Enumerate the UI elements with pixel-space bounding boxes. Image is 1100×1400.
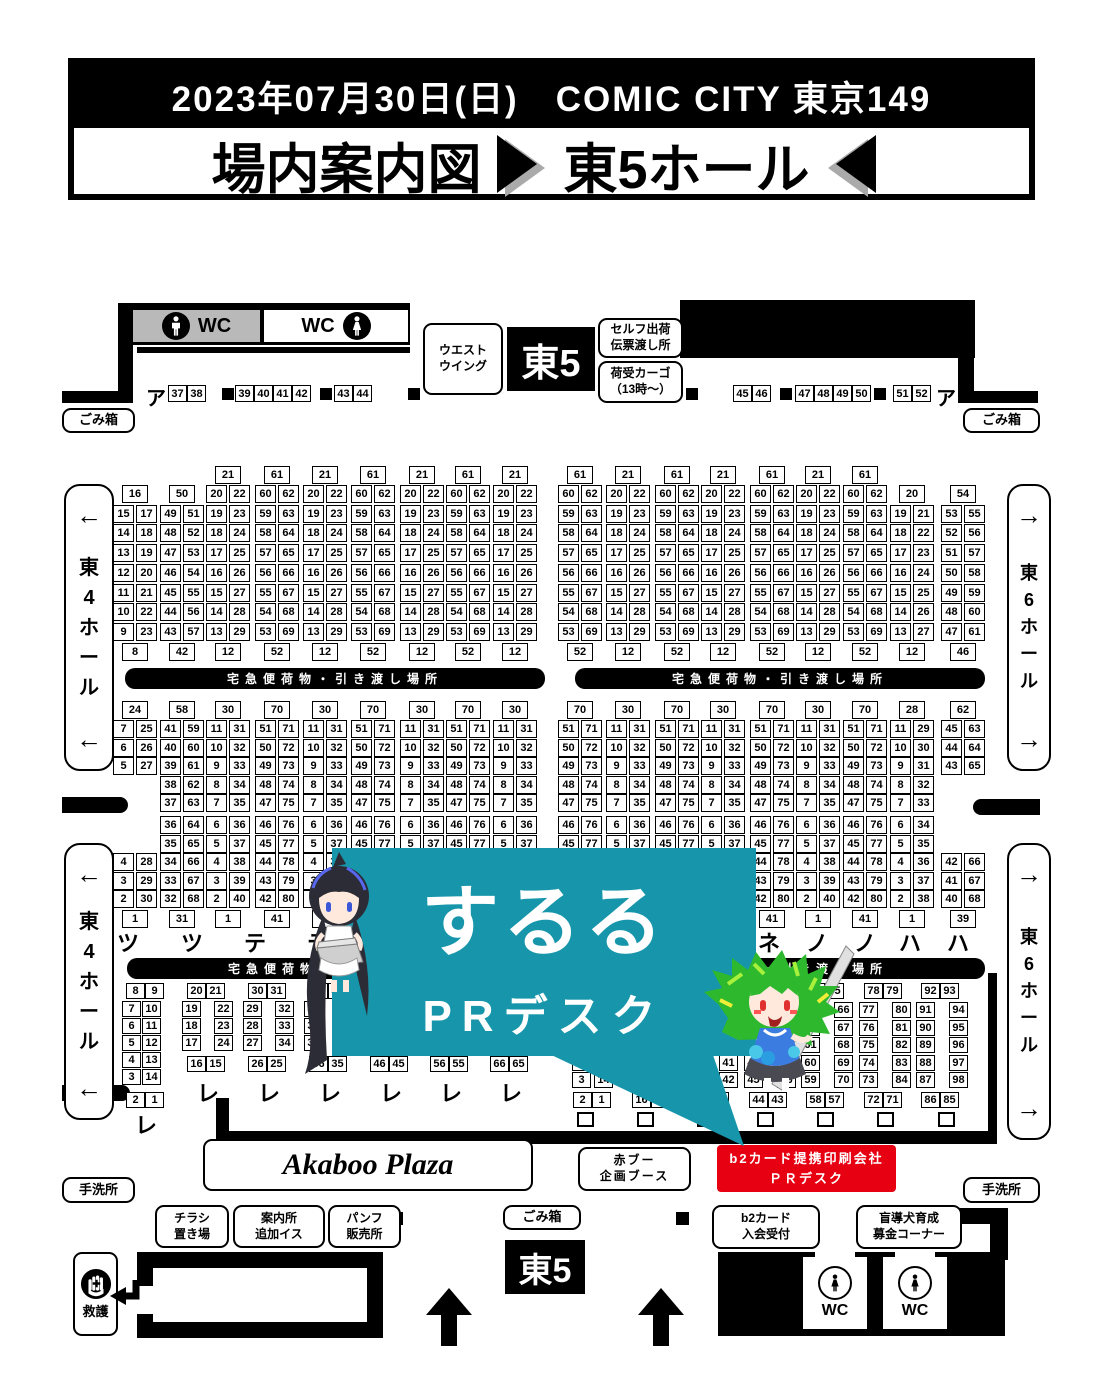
booth-cell: 10 xyxy=(400,739,421,757)
booth-cell: 10 xyxy=(142,1001,161,1017)
booth-cell: 44 xyxy=(255,853,276,871)
booth-cell-row-a: 38 xyxy=(187,385,206,402)
courier-banner-1: 宅急便荷物・引き渡し場所 xyxy=(125,668,545,689)
booth-cell: 16 xyxy=(303,564,324,582)
booth-cell: 48 xyxy=(160,524,181,542)
booth-cell: 65 xyxy=(374,544,395,562)
booth-cell: 60 xyxy=(655,485,676,503)
booth-cell: 33 xyxy=(229,757,250,775)
booth-cell: 53 xyxy=(558,623,579,641)
booth-cell: 31 xyxy=(724,720,745,738)
booth-cell: 20 xyxy=(606,485,627,503)
booth-cell: 58 xyxy=(446,524,467,542)
wc-women-top: WC xyxy=(264,310,408,342)
first-aid-hand-icon xyxy=(80,1268,112,1300)
wall xyxy=(62,391,120,403)
booth-cell: 32 xyxy=(724,739,745,757)
booth-cell: 42 xyxy=(255,890,276,908)
booth-cell: 82 xyxy=(892,1037,911,1053)
wc-label: WC xyxy=(822,1302,849,1320)
booth-cell: 72 xyxy=(678,739,699,757)
booth-cell: 15 xyxy=(206,584,227,602)
booth-cell: 68 xyxy=(866,603,887,621)
booth-cell: 17 xyxy=(182,1035,201,1051)
booth-cell: 35 xyxy=(326,794,347,812)
booth-cell-row-a: 39 xyxy=(235,385,254,402)
booth-cell: 9 xyxy=(303,757,324,775)
booth-cell: 7 xyxy=(493,794,514,812)
booth-block-header: 61 xyxy=(360,466,386,484)
booth-cell: 33 xyxy=(160,872,181,890)
booth-cell: 71 xyxy=(678,720,699,738)
booth-cell: 72 xyxy=(374,739,395,757)
booth-cell: 23 xyxy=(629,505,650,523)
booth-cell: 84 xyxy=(892,1072,911,1088)
booth-cell: 5 xyxy=(796,835,817,853)
booth-cell: 14 xyxy=(400,603,421,621)
booth-cell: 80 xyxy=(773,890,794,908)
booth-cell: 54 xyxy=(255,603,276,621)
booth-cell: 48 xyxy=(446,776,467,794)
booth-cell: 19 xyxy=(796,505,817,523)
wall xyxy=(118,303,133,403)
booth-cell: 34 xyxy=(275,1035,294,1051)
booth-cell: 77 xyxy=(773,835,794,853)
booth-cell-row-a: 49 xyxy=(833,385,852,402)
wc-label: WC xyxy=(301,315,334,338)
booth-cell: 49 xyxy=(941,584,962,602)
booth-cell: 62 xyxy=(374,485,395,503)
booth-block-header: 31 xyxy=(267,983,286,999)
booth-cell: 6 xyxy=(606,816,627,834)
booth-cell: 56 xyxy=(183,603,204,621)
booth-cell: 49 xyxy=(558,757,579,775)
booth-cell: 50 xyxy=(558,739,579,757)
booth-cell: 19 xyxy=(136,544,157,562)
booth-cell: 89 xyxy=(916,1037,935,1053)
booth-cell: 56 xyxy=(351,564,372,582)
booth-cell: 60 xyxy=(558,485,579,503)
booth-cell: 16 xyxy=(606,564,627,582)
trash-label-center: ごみ箱 xyxy=(503,1205,581,1230)
booth-cell: 23 xyxy=(326,505,347,523)
booth-cell: 61 xyxy=(964,623,985,641)
booth-cell-row-a: 40 xyxy=(254,385,273,402)
booth-cell: 44 xyxy=(941,739,962,757)
booth-cell: 7 xyxy=(796,794,817,812)
booth-block-header: 30 xyxy=(710,701,736,719)
booth-cell: 62 xyxy=(581,485,602,503)
booth-cell: 25 xyxy=(819,544,840,562)
booth-cell: 45 xyxy=(255,835,276,853)
booth-block-header: 62 xyxy=(950,701,976,719)
booth-cell: 50 xyxy=(255,739,276,757)
booth-cell: 53 xyxy=(750,623,771,641)
booth-cell: 37 xyxy=(913,872,934,890)
booth-block-header: 61 xyxy=(852,466,878,484)
booth-cell-row-a: 43 xyxy=(334,385,353,402)
booth-cell: 17 xyxy=(606,544,627,562)
booth-cell: 57 xyxy=(558,544,579,562)
booth-block-footer: 12 xyxy=(710,643,736,661)
booth-cell: 32 xyxy=(326,739,347,757)
booth-cell: 47 xyxy=(843,794,864,812)
booth-cell: 69 xyxy=(866,623,887,641)
booth-grid: 1615141317181912111092021222385049484751… xyxy=(0,0,1100,1400)
booth-cell: 87 xyxy=(916,1072,935,1088)
booth-cell: 9 xyxy=(796,757,817,775)
booth-cell-row-a: 46 xyxy=(752,385,771,402)
booth-block-header: 30 xyxy=(312,701,338,719)
booth-cell: 14 xyxy=(796,603,817,621)
booth-cell: 23 xyxy=(913,544,934,562)
booth-cell: 13 xyxy=(113,544,134,562)
row-a-label-left: ア xyxy=(146,382,166,411)
booth-cell: 59 xyxy=(351,505,372,523)
booth-cell: 27 xyxy=(516,584,537,602)
booth-cell: 6 xyxy=(796,816,817,834)
booth-cell: 73 xyxy=(773,757,794,775)
booth-cell: 7 xyxy=(606,794,627,812)
booth-cell: 29 xyxy=(136,872,157,890)
cargo-box: 荷受カーゴ （13時～） xyxy=(598,361,683,403)
booth-cell: 66 xyxy=(773,564,794,582)
booth-cell: 53 xyxy=(655,623,676,641)
booth-cell: 35 xyxy=(516,794,537,812)
booth-cell: 32 xyxy=(516,739,537,757)
booth-cell: 22 xyxy=(214,1001,233,1017)
booth-cell: 65 xyxy=(964,757,985,775)
booth-cell: 57 xyxy=(843,544,864,562)
booth-cell: 69 xyxy=(581,623,602,641)
up-arrow-icon xyxy=(638,1288,684,1346)
wc-label: WC xyxy=(198,315,231,338)
booth-block-header: 21 xyxy=(409,466,435,484)
right-arrow-icon: → xyxy=(1016,859,1042,890)
booth-cell: 96 xyxy=(949,1037,968,1053)
booth-cell: 31 xyxy=(326,720,347,738)
booth-block-footer: 46 xyxy=(950,643,976,661)
booth-cell: 67 xyxy=(773,584,794,602)
booth-cell: 9 xyxy=(606,757,627,775)
booth-cell: 56 xyxy=(255,564,276,582)
hall6-label: 東 6 ホ ー ル xyxy=(1020,924,1038,1059)
booth-block-header: 30 xyxy=(248,983,267,999)
booth-block-footer: 44 xyxy=(749,1092,768,1108)
booth-cell: 14 xyxy=(493,603,514,621)
booth-cell: 71 xyxy=(374,720,395,738)
booth-cell: 34 xyxy=(229,776,250,794)
booth-block-header: 61 xyxy=(759,466,785,484)
booth-cell: 57 xyxy=(351,544,372,562)
booth-cell: 13 xyxy=(303,623,324,641)
booth-block-footer: 25 xyxy=(267,1056,286,1072)
booth-cell: 45 xyxy=(160,584,181,602)
booth-cell: 34 xyxy=(160,853,181,871)
booth-cell: 54 xyxy=(446,603,467,621)
booth-cell: 50 xyxy=(446,739,467,757)
booth-cell: 64 xyxy=(469,524,490,542)
booth-cell: 48 xyxy=(750,776,771,794)
booth-cell: 65 xyxy=(678,544,699,562)
hall5-tag-top: 東5 xyxy=(507,327,595,391)
booth-cell: 69 xyxy=(374,623,395,641)
up-arrow-icon xyxy=(426,1288,472,1346)
booth-cell: 71 xyxy=(278,720,299,738)
booth-block-header: 78 xyxy=(864,983,883,999)
booth-cell: 46 xyxy=(160,564,181,582)
row-letter: ツ xyxy=(117,926,139,958)
booth-cell: 62 xyxy=(866,485,887,503)
booth-cell: 53 xyxy=(351,623,372,641)
booth-cell: 43 xyxy=(941,757,962,775)
trash-label-left: ごみ箱 xyxy=(62,408,135,433)
booth-cell: 23 xyxy=(516,505,537,523)
booth-block-header: 50 xyxy=(169,485,195,503)
booth-cell: 25 xyxy=(326,544,347,562)
booth-cell: 46 xyxy=(843,816,864,834)
booth-cell: 11 xyxy=(493,720,514,738)
wc-door-notch xyxy=(895,1250,935,1257)
booth-cell: 43 xyxy=(160,623,181,641)
booth-cell: 74 xyxy=(469,776,490,794)
booth-cell: 68 xyxy=(964,890,985,908)
booth-cell: 40 xyxy=(819,890,840,908)
hall4-label: 東 4 ホ ー ル xyxy=(79,907,99,1057)
booth-cell: 18 xyxy=(136,524,157,542)
booth-cell: 55 xyxy=(964,505,985,523)
map-title-hall: 東5ホール xyxy=(563,125,809,204)
row-letter: テ xyxy=(244,926,266,958)
booth-cell: 51 xyxy=(750,720,771,738)
booth-cell: 63 xyxy=(183,794,204,812)
booth-cell: 57 xyxy=(655,544,676,562)
booth-cell: 19 xyxy=(890,505,911,523)
first-aid-label: 救護 xyxy=(82,1304,108,1321)
booth-cell: 20 xyxy=(493,485,514,503)
booth-cell: 55 xyxy=(655,584,676,602)
booth-cell: 15 xyxy=(606,584,627,602)
booth-cell: 41 xyxy=(941,872,962,890)
booth-cell: 58 xyxy=(655,524,676,542)
booth-cell: 71 xyxy=(773,720,794,738)
booth-cell: 26 xyxy=(516,564,537,582)
booth-cell: 55 xyxy=(750,584,771,602)
booth-cell: 3 xyxy=(796,872,817,890)
booth-cell: 64 xyxy=(773,524,794,542)
booth-cell: 36 xyxy=(724,816,745,834)
booth-cell: 27 xyxy=(819,584,840,602)
booth-cell: 60 xyxy=(351,485,372,503)
row-letter: ハ xyxy=(899,926,921,958)
booth-cell: 77 xyxy=(866,835,887,853)
booth-cell: 66 xyxy=(469,564,490,582)
booth-cell: 55 xyxy=(843,584,864,602)
booth-cell: 66 xyxy=(581,564,602,582)
booth-cell: 14 xyxy=(113,524,134,542)
booth-cell: 91 xyxy=(916,1002,935,1018)
booth-block-footer: 1 xyxy=(145,1092,164,1108)
booth-cell: 67 xyxy=(374,584,395,602)
booth-cell: 27 xyxy=(136,757,157,775)
booth-block-header: 70 xyxy=(567,701,593,719)
booth-cell: 59 xyxy=(558,505,579,523)
wall xyxy=(680,300,975,358)
row-letter-re: レ xyxy=(440,1076,462,1108)
info-desk-box: 案内所 追加イス xyxy=(233,1205,325,1248)
booth-cell: 9 xyxy=(493,757,514,775)
booth-block-header: 70 xyxy=(264,701,290,719)
booth-cell: 13 xyxy=(206,623,227,641)
booth-cell: 3 xyxy=(122,1069,141,1085)
booth-cell: 57 xyxy=(255,544,276,562)
booth-cell: 2 xyxy=(113,890,134,908)
booth-cell: 7 xyxy=(890,794,911,812)
west-wing-box: ウエスト ウイング xyxy=(423,323,503,395)
booth-cell: 31 xyxy=(819,720,840,738)
booth-cell: 29 xyxy=(326,623,347,641)
booth-cell: 51 xyxy=(183,505,204,523)
booth-block-header: 16 xyxy=(122,485,148,503)
booth-block-footer: 15 xyxy=(206,1056,225,1072)
booth-cell: 61 xyxy=(183,757,204,775)
booth-cell: 22 xyxy=(516,485,537,503)
booth-block-footer: 55 xyxy=(449,1056,468,1072)
booth-cell: 33 xyxy=(423,757,444,775)
booth-cell: 83 xyxy=(892,1055,911,1071)
pillar xyxy=(320,388,332,400)
booth-cell: 24 xyxy=(819,524,840,542)
booth-cell: 53 xyxy=(843,623,864,641)
booth-cell: 3 xyxy=(206,872,227,890)
booth-cell: 22 xyxy=(229,485,250,503)
booth-block-header: 61 xyxy=(455,466,481,484)
booth-cell: 8 xyxy=(606,776,627,794)
booth-cell: 65 xyxy=(773,544,794,562)
booth-block-header: 21 xyxy=(502,466,528,484)
booth-cell: 50 xyxy=(941,564,962,582)
booth-cell: 14 xyxy=(303,603,324,621)
booth-cell: 9 xyxy=(400,757,421,775)
booth-block-header: 20 xyxy=(899,485,925,503)
booth-block-footer: 72 xyxy=(864,1092,883,1108)
booth-cell: 11 xyxy=(142,1018,161,1034)
booth-cell: 13 xyxy=(606,623,627,641)
booth-cell: 11 xyxy=(796,720,817,738)
booth-cell: 66 xyxy=(278,564,299,582)
booth-cell: 39 xyxy=(160,757,181,775)
booth-cell: 72 xyxy=(278,739,299,757)
booth-cell: 67 xyxy=(469,584,490,602)
booth-cell: 49 xyxy=(655,757,676,775)
entrance-structure xyxy=(137,1252,383,1338)
booth-block-footer: 52 xyxy=(264,643,290,661)
booth-cell: 11 xyxy=(303,720,324,738)
booth-block-footer: 57 xyxy=(825,1092,844,1108)
booth-cell: 17 xyxy=(303,544,324,562)
hall4-label: 東 4 ホ ー ル xyxy=(79,553,99,703)
hand-wash-left: 手洗所 xyxy=(62,1177,135,1203)
booth-cell: 3 xyxy=(113,872,134,890)
booth-cell: 5 xyxy=(890,835,911,853)
booth-cell: 56 xyxy=(558,564,579,582)
booth-cell: 23 xyxy=(136,623,157,641)
booth-block-footer: 58 xyxy=(806,1092,825,1108)
booth-cell: 49 xyxy=(843,757,864,775)
booth-block-footer: 52 xyxy=(759,643,785,661)
right-arrow-icon: → xyxy=(1016,500,1042,531)
booth-block-header: 9 xyxy=(145,983,164,999)
booth-cell-row-a: 41 xyxy=(273,385,292,402)
booth-cell: 59 xyxy=(964,584,985,602)
booth-cell: 43 xyxy=(843,872,864,890)
booth-cell: 32 xyxy=(423,739,444,757)
booth-cell: 50 xyxy=(843,739,864,757)
booth-cell: 32 xyxy=(629,739,650,757)
booth-cell: 14 xyxy=(890,603,911,621)
booth-cell: 7 xyxy=(701,794,722,812)
booth-cell: 17 xyxy=(890,544,911,562)
booth-cell: 11 xyxy=(113,584,134,602)
booth-cell: 10 xyxy=(796,739,817,757)
booth-cell: 68 xyxy=(773,603,794,621)
booth-block-header: 21 xyxy=(215,466,241,484)
booth-cell: 14 xyxy=(206,603,227,621)
booth-cell: 15 xyxy=(701,584,722,602)
booth-cell: 20 xyxy=(400,485,421,503)
booth-cell: 46 xyxy=(750,816,771,834)
b2-card-signup-box: b2カード 入会受付 xyxy=(712,1205,820,1249)
booth-cell: 40 xyxy=(229,890,250,908)
booth-cell: 23 xyxy=(819,505,840,523)
booth-cell: 32 xyxy=(913,776,934,794)
booth-block-footer: 52 xyxy=(664,643,690,661)
booth-cell: 56 xyxy=(964,524,985,542)
booth-cell: 65 xyxy=(866,544,887,562)
booth-cell: 31 xyxy=(423,720,444,738)
booth-cell: 51 xyxy=(843,720,864,738)
booth-cell: 6 xyxy=(400,816,421,834)
booth-cell: 48 xyxy=(655,776,676,794)
booth-cell: 76 xyxy=(374,816,395,834)
hall5-tag-bottom: 東5 xyxy=(505,1240,585,1294)
booth-cell: 57 xyxy=(446,544,467,562)
booth-cell: 34 xyxy=(819,776,840,794)
booth-block-header: 28 xyxy=(899,701,925,719)
wall xyxy=(973,799,1040,815)
trash-label-right: ごみ箱 xyxy=(963,408,1040,433)
booth-cell: 76 xyxy=(278,816,299,834)
wc-label: WC xyxy=(902,1302,929,1320)
booth-cell: 67 xyxy=(866,584,887,602)
booth-cell: 51 xyxy=(446,720,467,738)
booth-cell: 29 xyxy=(819,623,840,641)
booth-cell: 12 xyxy=(142,1035,161,1051)
booth-cell: 18 xyxy=(206,524,227,542)
booth-cell: 22 xyxy=(913,524,934,542)
booth-cell: 4 xyxy=(890,853,911,871)
booth-cell: 8 xyxy=(400,776,421,794)
akabu-booth-box: 赤ブー 企画ブース xyxy=(578,1147,691,1191)
booth-cell: 22 xyxy=(423,485,444,503)
booth-cell-row-a: 42 xyxy=(292,385,311,402)
booth-cell: 76 xyxy=(866,816,887,834)
booth-cell: 8 xyxy=(701,776,722,794)
booth-cell: 8 xyxy=(303,776,324,794)
booth-cell: 18 xyxy=(701,524,722,542)
booth-cell: 67 xyxy=(278,584,299,602)
booth-block-header: 21 xyxy=(710,466,736,484)
